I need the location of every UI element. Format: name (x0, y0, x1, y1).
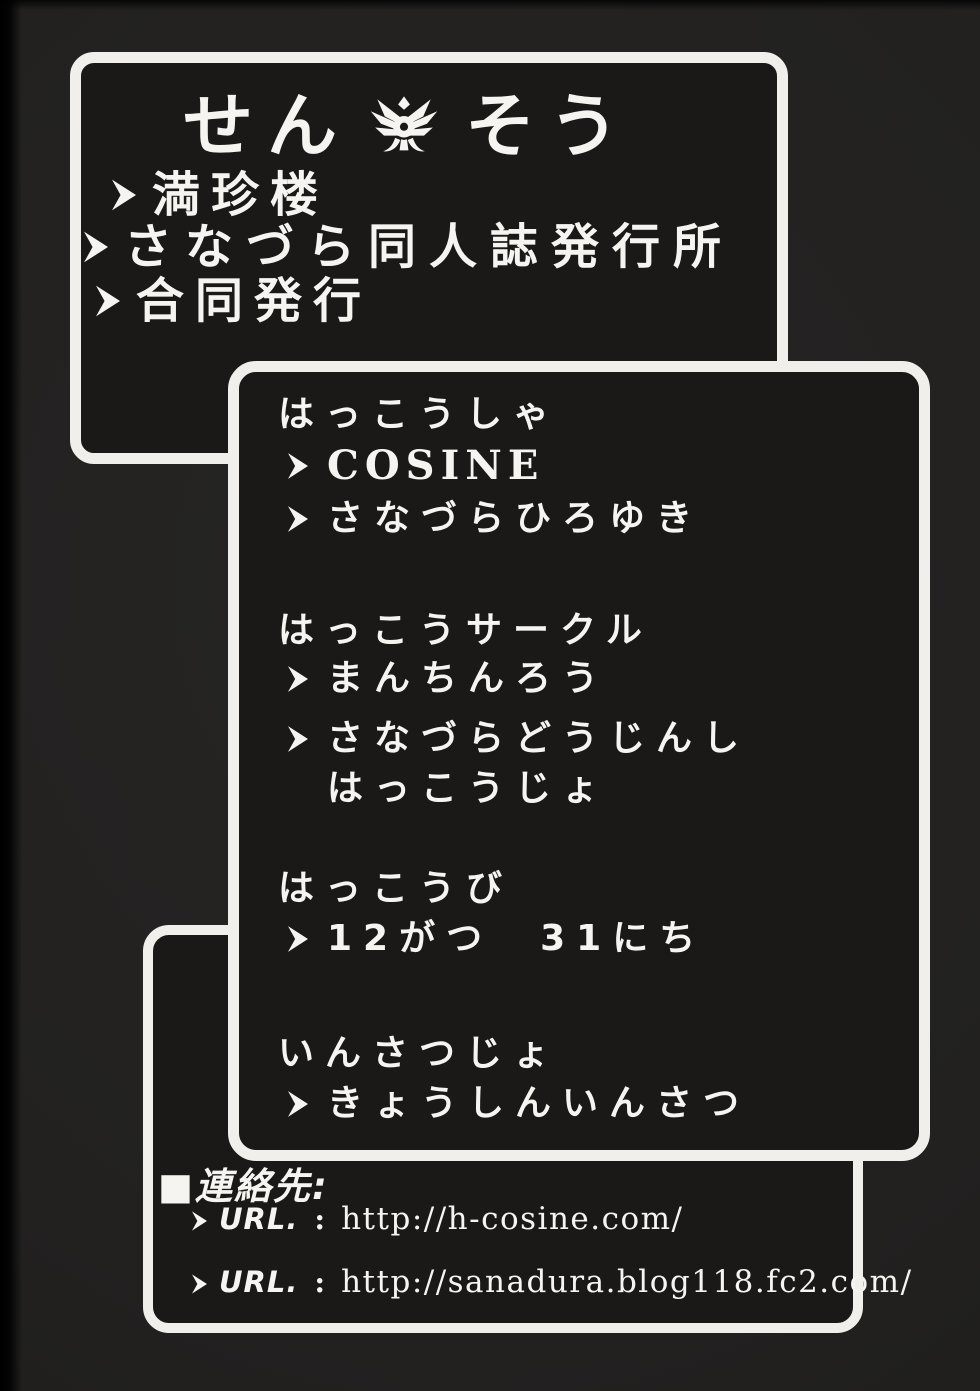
cursor-arrow-icon (84, 231, 108, 263)
url-row: URL. : http://h-cosine.com/ (192, 1201, 683, 1237)
cursor-arrow-icon (192, 1210, 207, 1232)
contact-heading: ■連絡先: (158, 1168, 329, 1205)
url-separator: : (314, 1265, 325, 1299)
cursor-arrow-icon (288, 725, 308, 753)
info-entry: まんちんろう (288, 661, 609, 697)
info-entry-text: さなづらどうじんし (327, 721, 750, 757)
info-entry-text: COSINE (327, 446, 544, 486)
cursor-arrow-icon (112, 179, 136, 211)
url-row: URL. : http://sanadura.blog118.fc2.com/ (192, 1264, 913, 1300)
scan-gutter-shadow (0, 0, 22, 1391)
cursor-arrow-icon (192, 1273, 207, 1295)
credit-item-label: 満珍楼 (152, 169, 329, 222)
info-entry-text: まんちんろう (327, 661, 609, 697)
credit-item: さなづら同人誌発行所 (84, 221, 734, 274)
credit-item-label: 合同発行 (136, 275, 372, 328)
credit-item: 合同発行 (96, 275, 372, 328)
scan-top-shadow (0, 0, 980, 10)
info-entry: 12がつ 31にち (288, 921, 706, 957)
info-entry-text: 12がつ 31にち (327, 921, 706, 957)
publication-info-box: はっこうしゃ COSINE さなづらひろゆき はっこうサークル まんちんろう さ… (228, 361, 930, 1161)
cursor-arrow-icon (288, 665, 308, 693)
section-label-publisher: はっこうしゃ (278, 397, 560, 433)
section-label-printer: いんさつじょ (278, 1036, 560, 1072)
url-label: URL. (219, 1202, 298, 1236)
credit-item-label: さなづら同人誌発行所 (124, 221, 734, 274)
info-entry: COSINE (288, 446, 544, 486)
url-separator: : (314, 1202, 325, 1236)
cursor-arrow-icon (288, 452, 308, 480)
cursor-arrow-icon (288, 925, 308, 953)
winged-crest-icon (367, 92, 441, 160)
cursor-arrow-icon (288, 505, 308, 533)
section-label-date: はっこうび (278, 871, 513, 907)
cursor-arrow-icon (288, 1090, 308, 1118)
cursor-arrow-icon (96, 285, 120, 317)
title-text-left: せん (183, 91, 351, 161)
info-entry-text: さなづらひろゆき (327, 501, 703, 537)
info-entry: さなづらどうじんし (288, 721, 750, 757)
section-label-circle: はっこうサークル (278, 613, 653, 649)
colophon-page: せん そう (0, 0, 980, 1391)
url-value: http://sanadura.blog118.fc2.com/ (341, 1264, 912, 1300)
info-entry: きょうしんいんさつ (288, 1086, 750, 1122)
credit-item: 満珍楼 (112, 169, 329, 222)
url-value: http://h-cosine.com/ (341, 1201, 683, 1237)
info-entry-text: きょうしんいんさつ (327, 1086, 750, 1122)
info-entry: さなづらひろゆき (288, 501, 703, 537)
url-label: URL. (219, 1265, 298, 1299)
info-entry-continuation: はっこうじょ (327, 771, 609, 807)
title-text-right: そう (465, 91, 633, 161)
